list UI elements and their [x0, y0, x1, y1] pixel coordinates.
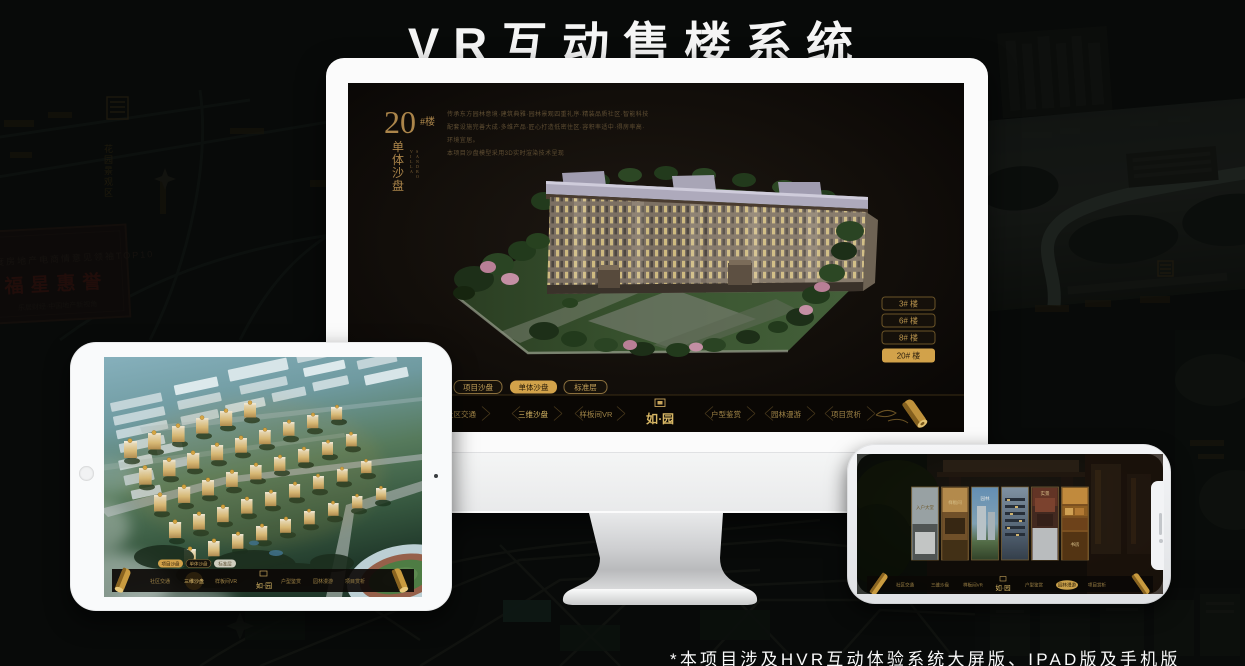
svg-text:园林漫游: 园林漫游 — [313, 578, 333, 585]
svg-text:3# 楼: 3# 楼 — [899, 299, 918, 309]
svg-text:户型鉴赏: 户型鉴赏 — [1025, 582, 1043, 589]
svg-text:环境宜居。: 环境宜居。 — [447, 136, 479, 144]
svg-text:20: 20 — [384, 104, 416, 140]
svg-text:单体沙盘: 单体沙盘 — [190, 561, 208, 568]
svg-text:单体沙盘: 单体沙盘 — [519, 382, 549, 392]
svg-text:项目赏析: 项目赏析 — [1088, 582, 1106, 589]
svg-text:8# 楼: 8# 楼 — [899, 333, 918, 343]
svg-text:园: 园 — [104, 155, 113, 165]
svg-text:O: O — [416, 174, 419, 179]
svg-text:社区交通: 社区交通 — [896, 582, 914, 589]
svg-text:社区交通: 社区交通 — [150, 578, 170, 585]
svg-text:样板间VR: 样板间VR — [215, 578, 237, 585]
svg-text:户型鉴赏: 户型鉴赏 — [711, 409, 741, 419]
svg-text:园林漫游: 园林漫游 — [1058, 582, 1076, 589]
svg-text:景: 景 — [104, 166, 113, 176]
svg-text:区: 区 — [104, 188, 113, 198]
svg-text:单: 单 — [392, 140, 404, 154]
svg-text:本项目沙盘模型采用3D实时渲染技术呈现: 本项目沙盘模型采用3D实时渲染技术呈现 — [447, 149, 564, 157]
svg-text:#楼: #楼 — [420, 115, 435, 128]
svg-text:花: 花 — [104, 143, 113, 154]
svg-text:项目赏析: 项目赏析 — [345, 578, 365, 585]
svg-text:三维沙盘: 三维沙盘 — [518, 409, 548, 419]
svg-text:如·园: 如·园 — [646, 411, 674, 426]
svg-text:标准层: 标准层 — [218, 561, 232, 568]
svg-text:样板间VR: 样板间VR — [580, 409, 614, 419]
svg-text:20# 楼: 20# 楼 — [897, 351, 921, 361]
svg-text:传承东方园林意境·建筑典雅·园林景观四重礼序·精装品质社区·: 传承东方园林意境·建筑典雅·园林景观四重礼序·精装品质社区·智能科技 — [447, 110, 649, 118]
svg-text:6# 楼: 6# 楼 — [899, 316, 918, 326]
svg-text:沙: 沙 — [392, 166, 404, 180]
svg-text:三维沙盘: 三维沙盘 — [184, 578, 204, 585]
svg-text:A: A — [410, 169, 413, 174]
svg-text:观: 观 — [104, 177, 113, 187]
svg-text:样板间VR: 样板间VR — [963, 582, 984, 589]
svg-text:户型鉴赏: 户型鉴赏 — [281, 578, 301, 585]
svg-text:项目沙盘: 项目沙盘 — [162, 561, 180, 568]
svg-text:如·园: 如·园 — [995, 583, 1010, 592]
svg-text:如·园: 如·园 — [256, 581, 272, 590]
svg-text:项目赏析: 项目赏析 — [831, 409, 861, 419]
svg-text:标准层: 标准层 — [574, 382, 597, 392]
svg-text:园林漫游: 园林漫游 — [771, 409, 801, 419]
svg-text:三维沙盘: 三维沙盘 — [931, 582, 949, 589]
svg-text:配套设施完善大成·多维产品·匠心打造低密住区·容积率适中·得: 配套设施完善大成·多维产品·匠心打造低密住区·容积率适中·得房率高· — [447, 123, 645, 131]
svg-text:盘: 盘 — [392, 178, 404, 193]
svg-text:项目沙盘: 项目沙盘 — [463, 382, 493, 392]
svg-text:体: 体 — [392, 153, 404, 167]
